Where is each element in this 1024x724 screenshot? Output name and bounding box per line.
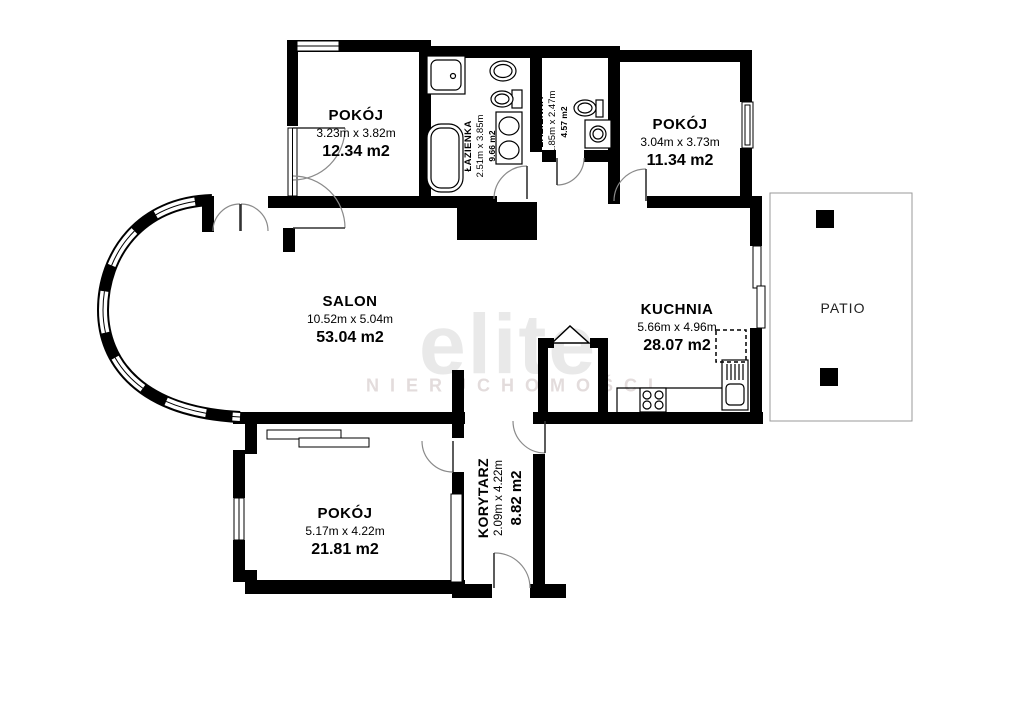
bidet (491, 90, 522, 108)
label-room-top-right: POKÓJ 3.04m x 3.73m 11.34 m2 (640, 116, 719, 170)
patio-post (820, 368, 838, 386)
label-patio: PATIO (821, 300, 866, 316)
bathtub (427, 124, 463, 192)
label-bathroom-2: ŁAZIENKA 1.85m x 2.47m 4.57 m2 (535, 91, 569, 154)
patio-post (816, 210, 834, 228)
washing-machine (585, 120, 611, 148)
shower (427, 56, 465, 94)
label-corridor: KORYTARZ 2.09m x 4.22m 8.82 m2 (475, 458, 525, 538)
fridge-dashed (716, 330, 746, 362)
floor-plan-drawing (0, 0, 1024, 724)
label-room-top-left: POKÓJ 3.23m x 3.82m 12.34 m2 (316, 107, 395, 161)
label-salon: SALON 10.52m x 5.04m 53.04 m2 (307, 293, 393, 347)
toilet (574, 100, 603, 117)
floor-plan: elite NIERUCHOMOŚCI (0, 0, 1024, 724)
folding-door (552, 326, 589, 343)
counter (617, 388, 722, 412)
double-sink (496, 112, 522, 164)
bay-window-wall (103, 200, 240, 417)
kitchen-sink (722, 360, 748, 410)
toilet (490, 61, 516, 81)
label-kitchen: KUCHNIA 5.66m x 4.96m 28.07 m2 (637, 301, 716, 355)
label-bathroom-1: ŁAZIENKA 2.51m x 3.85m 9.66 m2 (463, 115, 497, 178)
stove (640, 388, 666, 412)
bathroom-2-fixtures (574, 100, 611, 148)
label-room-bottom: POKÓJ 5.17m x 4.22m 21.81 m2 (305, 505, 384, 559)
